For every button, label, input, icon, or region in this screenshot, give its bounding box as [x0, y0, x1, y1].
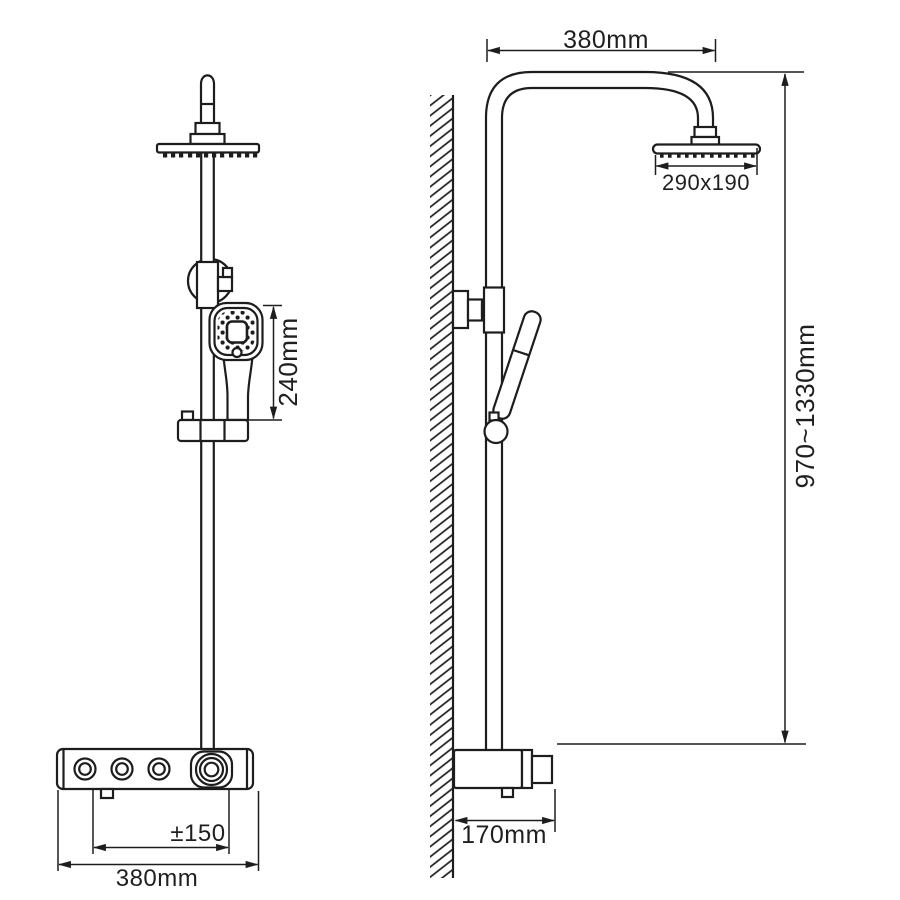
- dim-380mm-top-label: 380mm: [563, 26, 649, 54]
- dim-290x190-label: 290x190: [662, 170, 750, 195]
- panel-side: [454, 750, 552, 797]
- riser-pole-front: [201, 152, 214, 749]
- dim-380mm-bottom-label: 380mm: [116, 865, 199, 892]
- panel-knob-side: [532, 756, 552, 783]
- wall-hatching: [430, 95, 453, 878]
- bracket-hook-icon: [218, 268, 232, 291]
- head-connector-side: [692, 127, 720, 145]
- diagram-canvas: 380mm 290x190 240mm 970~1330mm ±150 380m…: [0, 0, 900, 900]
- hand-shower-handle: [223, 352, 253, 420]
- front-view: [57, 75, 263, 798]
- hand-shower-face: [210, 303, 263, 360]
- overhead-head-plate-front: [157, 144, 259, 153]
- hand-shower-small-nozzle: [233, 348, 242, 357]
- hand-shower-mode-button: [227, 322, 247, 343]
- dim-170mm-label: 170mm: [461, 821, 547, 849]
- slider-bracket-front: [197, 262, 218, 308]
- panel-tab-front: [101, 789, 113, 798]
- overhead-pipe-front: [191, 75, 225, 144]
- dim-970-1330mm-label: 970~1330mm: [790, 324, 820, 489]
- side-view-dimensions: [456, 39, 807, 832]
- slider-bracket-side: [484, 288, 504, 333]
- head-plate-side: [653, 145, 760, 154]
- thermostat-panel-front: [57, 749, 253, 798]
- holder-ring-side: [485, 420, 508, 443]
- shower-technical-drawing: 380mm 290x190 240mm 970~1330mm ±150 380m…: [0, 0, 900, 900]
- panel-tab-side: [502, 788, 513, 797]
- dim-240mm-label: 240mm: [273, 317, 303, 406]
- wall-bracket-side: [453, 288, 504, 333]
- shower-arm-connector-front: [196, 123, 220, 134]
- dim-plus-minus-150-label: ±150: [170, 820, 225, 847]
